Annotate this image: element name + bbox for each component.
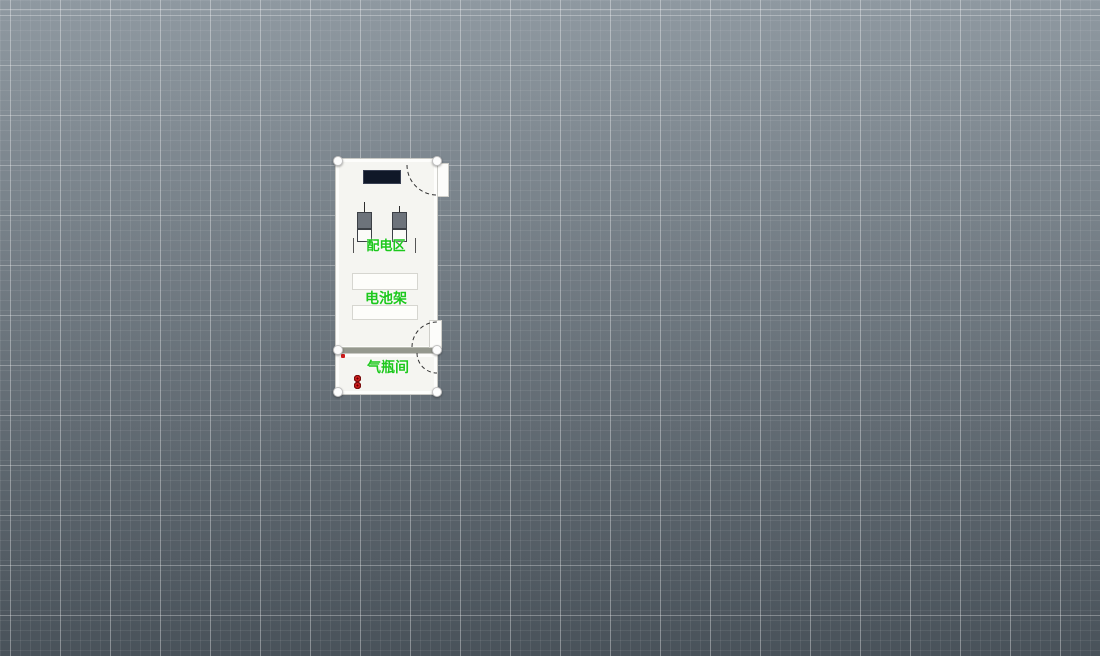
door-swing-arcs xyxy=(335,158,455,398)
floor-plan[interactable]: 配电区 电池架 气瓶间 xyxy=(335,158,438,395)
selection-handle[interactable] xyxy=(432,345,442,355)
selection-handle[interactable] xyxy=(432,156,442,166)
selection-handle[interactable] xyxy=(333,387,343,397)
selection-handle[interactable] xyxy=(432,387,442,397)
drawing-canvas[interactable]: 配电区 电池架 气瓶间 xyxy=(0,0,1100,656)
selection-handle[interactable] xyxy=(333,156,343,166)
selection-handle[interactable] xyxy=(333,345,343,355)
